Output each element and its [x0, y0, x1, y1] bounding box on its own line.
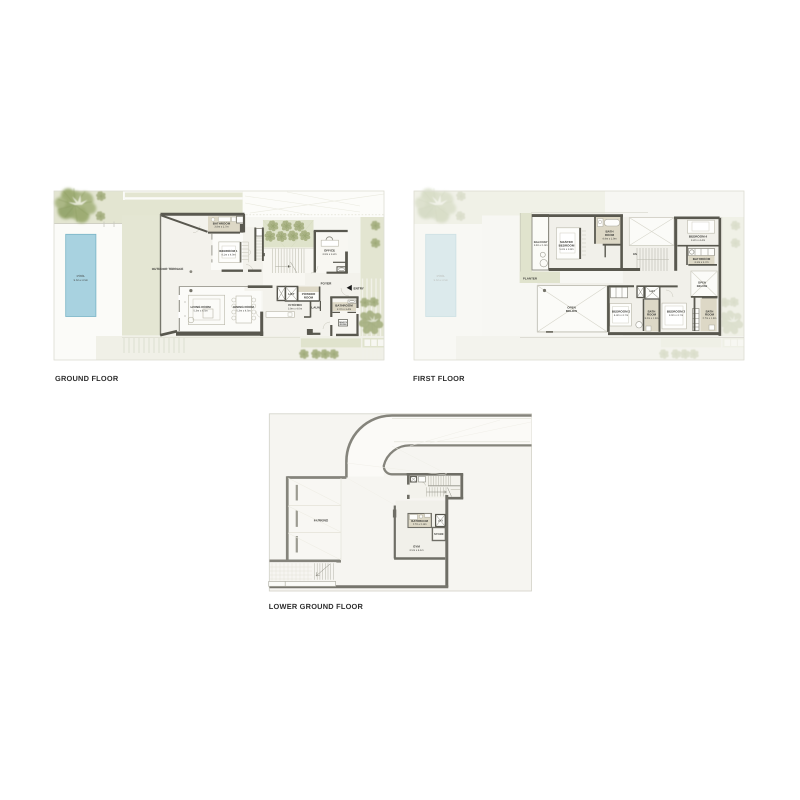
svg-text:POOL: POOL: [437, 274, 446, 278]
svg-text:LIFT: LIFT: [288, 292, 294, 296]
svg-text:3.2m x 4.4m: 3.2m x 4.4m: [691, 239, 705, 242]
svg-text:BELOW: BELOW: [566, 309, 577, 313]
svg-text:ROOM: ROOM: [340, 323, 347, 326]
svg-text:5.3m x 4.5m: 5.3m x 4.5m: [236, 309, 250, 312]
svg-text:BEDROOM 4: BEDROOM 4: [689, 235, 708, 239]
svg-text:3.1m x 1.7m: 3.1m x 1.7m: [694, 261, 708, 264]
svg-text:OUTDOOR TERRACE: OUTDOOR TERRACE: [152, 267, 184, 271]
svg-text:3.9m x 1.9m: 3.9m x 1.9m: [534, 244, 548, 247]
svg-text:DN: DN: [633, 252, 637, 256]
svg-text:OFFICE: OFFICE: [324, 249, 335, 253]
svg-text:3.0m x 3.7m: 3.0m x 3.7m: [669, 314, 683, 317]
svg-text:3.5m x 4.1m: 3.5m x 4.1m: [409, 549, 423, 552]
svg-text:BEDROOM: BEDROOM: [559, 243, 575, 247]
svg-text:LOWER GROUND FLOOR: LOWER GROUND FLOOR: [269, 602, 364, 611]
svg-text:ENTRY: ENTRY: [354, 286, 365, 290]
svg-text:BEDROOM 3: BEDROOM 3: [667, 310, 686, 314]
svg-text:4.4m x 1.9m: 4.4m x 1.9m: [602, 237, 616, 240]
svg-text:2.7m x 1.9m: 2.7m x 1.9m: [703, 317, 717, 320]
svg-text:LIFT: LIFT: [650, 290, 656, 293]
svg-text:FOYER: FOYER: [321, 282, 332, 286]
svg-text:STORE: STORE: [434, 532, 444, 536]
svg-text:3.9m x 3.2m: 3.9m x 3.2m: [322, 253, 336, 256]
svg-text:PLANTER: PLANTER: [523, 277, 538, 281]
svg-text:LIFT: LIFT: [438, 520, 444, 523]
svg-text:2.7m x 1.4m: 2.7m x 1.4m: [337, 308, 351, 311]
svg-text:BEDROOM 1: BEDROOM 1: [219, 249, 238, 253]
svg-text:4.1m x 4.0m: 4.1m x 4.0m: [221, 253, 235, 256]
svg-text:GYM: GYM: [413, 545, 420, 549]
svg-text:3.8m x 1.7m: 3.8m x 1.7m: [214, 226, 228, 229]
svg-text:KITCHEN: KITCHEN: [288, 303, 301, 307]
svg-text:9.5m x 3.5m: 9.5m x 3.5m: [434, 279, 448, 282]
svg-text:LIVING ROOM: LIVING ROOM: [191, 305, 212, 309]
svg-text:2.7m x 1.8m: 2.7m x 1.8m: [413, 523, 427, 526]
svg-text:FIRST FLOOR: FIRST FLOOR: [413, 374, 465, 383]
svg-text:ROOM: ROOM: [304, 296, 314, 300]
svg-text:PARKING: PARKING: [314, 519, 329, 523]
svg-text:LAUN.: LAUN.: [311, 306, 320, 310]
svg-text:BELOW: BELOW: [697, 284, 708, 288]
svg-text:5.3m x 4.5m: 5.3m x 4.5m: [193, 309, 207, 312]
svg-text:POOL: POOL: [77, 274, 86, 278]
svg-text:BEDROOM 2: BEDROOM 2: [612, 310, 631, 314]
svg-text:4.3m x 3.7m: 4.3m x 3.7m: [614, 314, 628, 317]
svg-text:DINING ROOM: DINING ROOM: [233, 305, 254, 309]
svg-text:GROUND FLOOR: GROUND FLOOR: [55, 374, 119, 383]
svg-text:9.5m x 3.5m: 9.5m x 3.5m: [74, 279, 88, 282]
svg-text:3.9m x 4.0m: 3.9m x 4.0m: [288, 307, 302, 310]
svg-text:5.6m x 3.9m: 5.6m x 3.9m: [559, 248, 573, 251]
svg-text:3.0m x 1.9m: 3.0m x 1.9m: [645, 317, 659, 320]
svg-text:ROOM: ROOM: [605, 233, 615, 237]
